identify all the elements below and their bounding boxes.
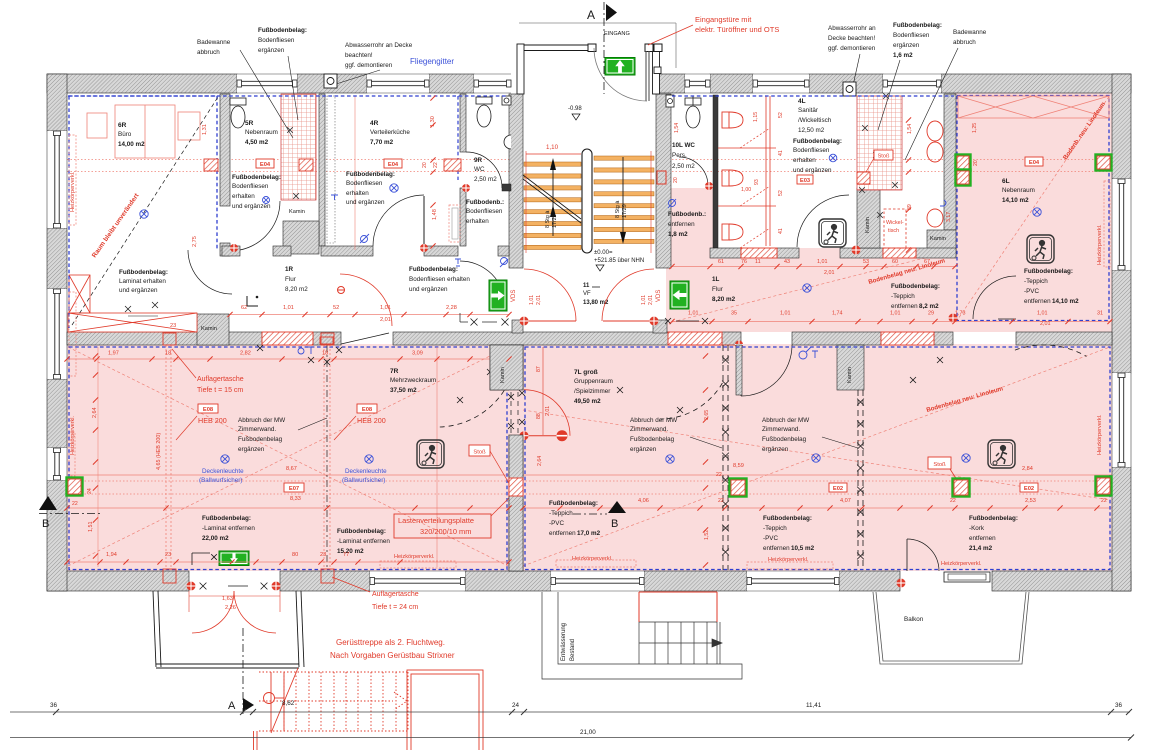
svg-text:Nebenraum: Nebenraum — [245, 129, 278, 136]
svg-text:Deckenleuchte: Deckenleuchte — [202, 468, 244, 475]
svg-text:Bodenfliesen erhalten: Bodenfliesen erhalten — [409, 276, 470, 283]
svg-text:Fußbodenbelag:: Fußbodenbelag: — [202, 515, 251, 522]
svg-text:Kamin: Kamin — [201, 326, 217, 332]
svg-text:Zimmerwand.: Zimmerwand. — [762, 426, 800, 433]
svg-text:1L: 1L — [712, 276, 720, 283]
svg-text:36: 36 — [1115, 702, 1123, 709]
svg-text:und ergänzen: und ergänzen — [409, 286, 448, 293]
svg-text:8,20 m2: 8,20 m2 — [285, 286, 308, 293]
svg-text:Nebenraum: Nebenraum — [1002, 187, 1035, 194]
svg-text:Bodenfliesen: Bodenfliesen — [346, 180, 383, 187]
svg-text:22: 22 — [1101, 498, 1107, 504]
svg-text:Stoß: Stoß — [933, 462, 946, 468]
svg-text:-Laminat entfernen: -Laminat entfernen — [337, 538, 390, 545]
svg-text:Laminat erhalten: Laminat erhalten — [119, 278, 166, 285]
svg-text:E02: E02 — [833, 486, 843, 492]
svg-text:88: 88 — [536, 413, 542, 419]
svg-text:Zimmerwand.: Zimmerwand. — [238, 426, 276, 433]
svg-text:8,20 m2: 8,20 m2 — [712, 296, 736, 303]
svg-text:Entwässerung: Entwässerung — [561, 623, 567, 661]
svg-text:VDS: VDS — [511, 290, 517, 302]
svg-text:7,70 m2: 7,70 m2 — [370, 139, 394, 146]
svg-text:ergänzen: ergänzen — [893, 42, 920, 49]
svg-text:entfernen: entfernen — [763, 545, 790, 552]
svg-text:Fußbodenbelag:: Fußbodenbelag: — [893, 22, 942, 29]
svg-text:1,15: 1,15 — [753, 112, 759, 122]
svg-text:Decke beachten!: Decke beachten! — [828, 35, 876, 42]
svg-text:Fußbodenbelag:: Fußbodenbelag: — [549, 500, 598, 507]
svg-text:1,54: 1,54 — [907, 124, 913, 134]
svg-text:erhalten: erhalten — [346, 190, 369, 197]
svg-text:62: 62 — [241, 305, 247, 311]
svg-text:10,5 m2: 10,5 m2 — [791, 545, 815, 552]
svg-text:Nach Vorgaben Gerüstbau Strixn: Nach Vorgaben Gerüstbau Strixner — [330, 651, 455, 660]
svg-text:Gruppenraum: Gruppenraum — [574, 378, 613, 385]
svg-text:Eingangstüre mit: Eingangstüre mit — [695, 15, 752, 24]
svg-text:Badewanne: Badewanne — [953, 29, 987, 36]
svg-text:beachten!: beachten! — [345, 52, 373, 59]
svg-text:VF: VF — [583, 291, 591, 297]
svg-text:Heizkörperverkl.: Heizkörperverkl. — [394, 554, 435, 560]
svg-text:und ergänzen: und ergänzen — [793, 167, 832, 174]
svg-text:31: 31 — [1097, 311, 1103, 317]
svg-text:Tiefe t = 15 cm: Tiefe t = 15 cm — [197, 387, 243, 394]
svg-text:(Ballwurfsicher): (Ballwurfsicher) — [199, 477, 242, 484]
svg-text:entfernen: entfernen — [549, 530, 576, 537]
svg-text:3,09: 3,09 — [412, 351, 423, 357]
svg-text:10L WC: 10L WC — [672, 142, 695, 149]
svg-text:2,50 m2: 2,50 m2 — [474, 176, 497, 183]
svg-text:Bodenfliesen: Bodenfliesen — [232, 183, 269, 190]
svg-text:Flur: Flur — [285, 276, 296, 283]
svg-text:22: 22 — [716, 472, 722, 478]
svg-text:1,52: 1,52 — [704, 530, 710, 540]
svg-text:Heizkörperverkl.: Heizkörperverkl. — [70, 171, 76, 212]
svg-text:A: A — [587, 8, 595, 22]
svg-text:2,75: 2,75 — [192, 236, 198, 247]
svg-text:+521.85 über NHN: +521.85 über NHN — [594, 258, 644, 264]
svg-text:Heizkörperverkl.: Heizkörperverkl. — [768, 557, 809, 563]
svg-text:Tiefe t = 24 cm: Tiefe t = 24 cm — [372, 604, 418, 611]
svg-text:35: 35 — [731, 311, 737, 317]
svg-text:abbruch: abbruch — [197, 49, 220, 56]
svg-text:1,73: 1,73 — [955, 311, 966, 317]
svg-text:ergänzen: ergänzen — [238, 446, 265, 453]
svg-text:Fußbodenbelag:: Fußbodenbelag: — [763, 515, 812, 522]
svg-text:3,17: 3,17 — [946, 212, 952, 222]
svg-text:-Laminat entfernen: -Laminat entfernen — [202, 525, 255, 532]
svg-text:8,62: 8,62 — [282, 700, 295, 707]
svg-text:2,01: 2,01 — [1040, 321, 1051, 327]
svg-text:HEB 200: HEB 200 — [198, 416, 227, 425]
svg-text:20: 20 — [973, 160, 979, 166]
svg-text:entfernen: entfernen — [969, 535, 996, 542]
svg-text:77: 77 — [343, 552, 349, 558]
svg-text:4,65 (HEB 200): 4,65 (HEB 200) — [156, 433, 162, 470]
svg-text:1R: 1R — [285, 266, 294, 273]
svg-text:2,01: 2,01 — [545, 406, 551, 416]
svg-text:93: 93 — [754, 179, 760, 185]
svg-text:elektr. Türöffner und OTS: elektr. Türöffner und OTS — [695, 25, 779, 34]
svg-text:29: 29 — [928, 311, 934, 317]
svg-text:(Ballwurfsicher): (Ballwurfsicher) — [342, 477, 385, 484]
svg-text:Büro: Büro — [118, 131, 132, 138]
svg-text:4R: 4R — [370, 120, 379, 127]
svg-text:9R: 9R — [474, 157, 483, 164]
svg-text:1,31: 1,31 — [202, 124, 208, 135]
svg-text:abbruch: abbruch — [953, 39, 976, 46]
svg-text:22: 22 — [718, 498, 724, 504]
svg-text:1,25: 1,25 — [972, 123, 978, 133]
svg-text:Fußbodenbelag:: Fußbodenbelag: — [346, 171, 395, 178]
svg-text:1,01: 1,01 — [529, 295, 535, 305]
svg-text:4L: 4L — [798, 98, 806, 105]
svg-text:18: 18 — [165, 351, 171, 357]
svg-text:76: 76 — [741, 259, 747, 265]
svg-text:1,10: 1,10 — [546, 144, 559, 151]
svg-text:4,07: 4,07 — [840, 498, 851, 504]
svg-text:E08: E08 — [203, 407, 214, 413]
svg-text:Bodenfliesen: Bodenfliesen — [793, 147, 830, 154]
svg-text:tisch: tisch — [888, 228, 899, 234]
svg-text:7L groß: 7L groß — [574, 369, 598, 376]
svg-text:WC: WC — [474, 166, 485, 173]
svg-text:14,10 m2: 14,10 m2 — [1002, 197, 1029, 204]
svg-text:Abbruch der MW: Abbruch der MW — [238, 417, 285, 424]
svg-text:Kamin: Kamin — [847, 367, 853, 383]
svg-text:1,00: 1,00 — [741, 187, 751, 193]
svg-text:22: 22 — [950, 498, 956, 504]
svg-text:60: 60 — [892, 259, 898, 265]
svg-text:-0.98: -0.98 — [568, 106, 582, 112]
svg-text:41: 41 — [778, 228, 784, 234]
svg-text:E03: E03 — [800, 178, 811, 184]
svg-text:VDS: VDS — [656, 290, 662, 302]
svg-text:erhalten: erhalten — [793, 157, 816, 164]
svg-text:Balkon: Balkon — [904, 616, 924, 623]
svg-text:Bodenfliesen: Bodenfliesen — [893, 32, 930, 39]
svg-text:/Wickeltisch: /Wickeltisch — [798, 117, 832, 124]
svg-text:8,2 m2: 8,2 m2 — [919, 303, 939, 310]
svg-text:Stoß: Stoß — [878, 154, 890, 160]
svg-text:-PVC: -PVC — [763, 535, 778, 542]
svg-text:-Teppich: -Teppich — [891, 293, 915, 300]
svg-text:22,00 m2: 22,00 m2 — [202, 535, 229, 542]
svg-text:Wickel-: Wickel- — [886, 220, 904, 226]
svg-text:-PVC: -PVC — [549, 520, 564, 527]
svg-text:23: 23 — [170, 323, 176, 329]
svg-text:Fußbodenbelag:: Fußbodenbelag: — [891, 283, 940, 290]
svg-text:2,50 m2: 2,50 m2 — [672, 163, 695, 170]
svg-text:Heizkörperverkl.: Heizkörperverkl. — [572, 556, 613, 562]
svg-text:Heizkörperverkl.: Heizkörperverkl. — [70, 416, 76, 455]
svg-text:Fußbodenbelag:: Fußbodenbelag: — [1024, 268, 1073, 275]
svg-text:49,50 m2: 49,50 m2 — [574, 398, 601, 405]
svg-text:23: 23 — [320, 552, 326, 558]
svg-text:Heizkörperverkl.: Heizkörperverkl. — [1097, 414, 1103, 455]
svg-text:entfernen: entfernen — [1024, 298, 1051, 305]
svg-text:14,10 m2: 14,10 m2 — [1052, 298, 1079, 305]
svg-text:-Teppich: -Teppich — [763, 525, 787, 532]
svg-text:Bodenfliesen: Bodenfliesen — [466, 208, 503, 215]
svg-text:17/29: 17/29 — [552, 214, 558, 228]
svg-text:B: B — [611, 518, 618, 530]
svg-text:2,01: 2,01 — [380, 317, 391, 323]
svg-text:2,84: 2,84 — [1022, 466, 1033, 472]
svg-text:±0.00=: ±0.00= — [594, 250, 613, 256]
svg-text:ggf. demontieren: ggf. demontieren — [828, 45, 876, 52]
svg-text:Abbruch der MW: Abbruch der MW — [762, 417, 809, 424]
svg-text:5R: 5R — [245, 120, 254, 127]
svg-text:52: 52 — [333, 305, 339, 311]
svg-text:8,59: 8,59 — [733, 463, 744, 469]
svg-text:6R: 6R — [118, 122, 127, 129]
svg-text:Bodenfliesen: Bodenfliesen — [258, 37, 295, 44]
svg-text:entfernen: entfernen — [891, 303, 918, 310]
svg-text:Kamin: Kamin — [289, 209, 305, 215]
svg-text:4,06: 4,06 — [638, 498, 649, 504]
svg-text:Stoß: Stoß — [473, 450, 486, 456]
svg-text:14,00 m2: 14,00 m2 — [118, 141, 145, 148]
svg-text:Pers.: Pers. — [672, 152, 687, 159]
svg-text:E08: E08 — [362, 407, 373, 413]
svg-text:Flur: Flur — [712, 286, 723, 293]
svg-text:87: 87 — [536, 366, 542, 372]
svg-text:18: 18 — [322, 351, 328, 357]
svg-text:Kamin: Kamin — [865, 217, 871, 233]
svg-text:Abwasserrohr an: Abwasserrohr an — [828, 25, 876, 32]
svg-text:Fußbodenbelag:: Fußbodenbelag: — [969, 515, 1018, 522]
svg-text:52: 52 — [778, 190, 784, 196]
svg-text:Heizkörperverkl.: Heizkörperverkl. — [941, 561, 982, 567]
svg-text:entfernen: entfernen — [668, 221, 695, 228]
svg-text:Auflagertasche: Auflagertasche — [197, 376, 244, 383]
svg-text:Fußbodenbelag: Fußbodenbelag — [762, 436, 807, 443]
svg-text:erhalten: erhalten — [232, 193, 255, 200]
svg-text:1,54: 1,54 — [674, 123, 680, 133]
svg-text:ergänzen: ergänzen — [258, 47, 285, 54]
svg-text:20: 20 — [422, 162, 428, 168]
svg-text:1,51: 1,51 — [88, 522, 94, 533]
svg-text:61: 61 — [718, 259, 724, 265]
svg-text:2,53: 2,53 — [1025, 498, 1036, 504]
svg-text:1,01: 1,01 — [780, 311, 791, 317]
svg-text:B: B — [42, 518, 49, 530]
svg-text:/Spielzimmer: /Spielzimmer — [574, 388, 610, 395]
svg-text:und ergänzen: und ergänzen — [232, 203, 271, 210]
svg-text:11: 11 — [755, 259, 761, 265]
svg-text:Deckenleuchte: Deckenleuchte — [345, 468, 387, 475]
svg-text:HEB 200: HEB 200 — [357, 416, 386, 425]
svg-text:17,0 m2: 17,0 m2 — [577, 530, 601, 537]
svg-text:ggf. demontieren: ggf. demontieren — [345, 62, 393, 69]
svg-text:7R: 7R — [390, 368, 399, 375]
svg-text:ergänzen: ergänzen — [762, 446, 789, 453]
svg-text:2,28: 2,28 — [446, 305, 457, 311]
svg-text:80: 80 — [292, 552, 298, 558]
svg-text:22: 22 — [433, 162, 439, 168]
svg-text:41: 41 — [778, 150, 784, 156]
svg-text:Auflagertasche: Auflagertasche — [372, 591, 419, 598]
svg-text:11: 11 — [583, 283, 590, 289]
svg-text:1,01: 1,01 — [817, 259, 828, 265]
svg-text:8,67: 8,67 — [286, 466, 297, 472]
svg-text:Verteilerküche: Verteilerküche — [370, 129, 410, 136]
svg-text:8 Stg à: 8 Stg à — [615, 200, 621, 218]
svg-text:2,64: 2,64 — [92, 408, 98, 419]
svg-text:E04: E04 — [388, 162, 399, 168]
svg-text:24: 24 — [87, 488, 93, 494]
svg-text:1,63: 1,63 — [222, 596, 233, 602]
svg-text:Abwasserrohr an Decke: Abwasserrohr an Decke — [345, 42, 413, 49]
svg-text:15,20 m2: 15,20 m2 — [337, 548, 364, 555]
svg-text:22: 22 — [72, 501, 78, 507]
svg-text:Fußbodenbelag:: Fußbodenbelag: — [337, 528, 386, 535]
svg-text:Fußbodenb.:: Fußbodenb.: — [668, 211, 706, 218]
svg-text:1,6 m2: 1,6 m2 — [893, 52, 913, 59]
svg-text:erhalten: erhalten — [466, 218, 489, 225]
svg-text:ergänzen: ergänzen — [630, 446, 657, 453]
svg-text:8,33: 8,33 — [290, 496, 301, 502]
svg-text:Fußbodenbelag:: Fußbodenbelag: — [409, 266, 458, 273]
svg-text:-PVC: -PVC — [1024, 288, 1039, 295]
svg-text:-Teppich: -Teppich — [549, 510, 573, 517]
svg-text:Zimmerwand.: Zimmerwand. — [630, 426, 668, 433]
svg-text:Sanitär: Sanitär — [798, 107, 818, 114]
svg-text:E07: E07 — [289, 486, 299, 492]
svg-text:E02: E02 — [1024, 486, 1034, 492]
svg-text:23: 23 — [165, 552, 171, 558]
svg-text:und ergänzen: und ergänzen — [346, 199, 385, 206]
svg-text:17/29: 17/29 — [622, 204, 628, 218]
svg-text:Badewanne: Badewanne — [197, 39, 231, 46]
svg-text:20: 20 — [673, 177, 679, 183]
svg-text:4,50 m2: 4,50 m2 — [245, 139, 269, 146]
svg-text:2,01: 2,01 — [648, 295, 654, 305]
svg-text:24: 24 — [512, 702, 520, 709]
svg-text:52: 52 — [778, 112, 784, 118]
svg-text:2,82: 2,82 — [240, 351, 251, 357]
svg-text:320/200/10 mm: 320/200/10 mm — [420, 527, 471, 536]
svg-text:1,01: 1,01 — [1037, 311, 1048, 317]
svg-text:A: A — [228, 700, 236, 712]
svg-text:6L: 6L — [1002, 178, 1010, 185]
svg-text:1,01: 1,01 — [283, 305, 294, 311]
svg-text:1,01: 1,01 — [688, 311, 699, 317]
svg-text:1,01: 1,01 — [641, 295, 647, 305]
svg-text:37,50 m2: 37,50 m2 — [390, 387, 417, 394]
svg-text:2,01: 2,01 — [536, 295, 542, 305]
svg-text:1,01: 1,01 — [890, 311, 901, 317]
svg-text:1,94: 1,94 — [106, 552, 117, 558]
svg-text:1,97: 1,97 — [108, 351, 119, 357]
svg-text:Fußbodenbelag:: Fußbodenbelag: — [119, 269, 168, 276]
svg-text:Mehrzweckraum: Mehrzweckraum — [390, 377, 436, 384]
svg-text:8 Stg à: 8 Stg à — [545, 210, 551, 228]
svg-text:21,00: 21,00 — [580, 729, 596, 736]
svg-text:-Teppich: -Teppich — [1024, 278, 1048, 285]
svg-text:2,01: 2,01 — [824, 270, 835, 276]
svg-text:1,48: 1,48 — [432, 209, 438, 220]
svg-text:1,74: 1,74 — [832, 311, 843, 317]
svg-text:Fußbodenb.:: Fußbodenb.: — [466, 199, 504, 206]
svg-text:Fußbodenbelag: Fußbodenbelag — [630, 436, 675, 443]
svg-text:Heizkörperverkl.: Heizkörperverkl. — [1097, 224, 1103, 265]
svg-text:Bestand: Bestand — [570, 639, 576, 661]
svg-text:E04: E04 — [260, 162, 271, 168]
svg-text:E04: E04 — [1029, 160, 1040, 166]
svg-text:Fußbodenbelag:: Fußbodenbelag: — [258, 27, 307, 34]
svg-text:-Kork: -Kork — [969, 525, 985, 532]
svg-text:43: 43 — [784, 259, 790, 265]
svg-text:Fußbodenbelag: Fußbodenbelag — [238, 436, 283, 443]
svg-text:1,8 m2: 1,8 m2 — [668, 231, 688, 238]
svg-text:2,64: 2,64 — [537, 456, 543, 466]
svg-text:Kamin: Kamin — [930, 236, 946, 242]
svg-text:Fliegengitter: Fliegengitter — [410, 57, 454, 66]
svg-text:und ergänzen: und ergänzen — [119, 287, 158, 294]
svg-text:Kamin: Kamin — [500, 367, 506, 383]
svg-text:36: 36 — [50, 702, 58, 709]
svg-text:Gerüsttreppe als 2. Fluchtweg.: Gerüsttreppe als 2. Fluchtweg. — [336, 638, 445, 647]
svg-text:11,41: 11,41 — [806, 702, 822, 709]
svg-text:21,4 m2: 21,4 m2 — [969, 545, 993, 552]
svg-text:Fußbodenbelag:: Fußbodenbelag: — [232, 174, 281, 181]
svg-text:Fußbodenbelag:: Fußbodenbelag: — [793, 138, 842, 145]
svg-text:12,50 m2: 12,50 m2 — [798, 127, 825, 134]
svg-text:EINGANG: EINGANG — [604, 31, 630, 37]
svg-text:Lastenverteilungsplatte: Lastenverteilungsplatte — [398, 516, 474, 525]
